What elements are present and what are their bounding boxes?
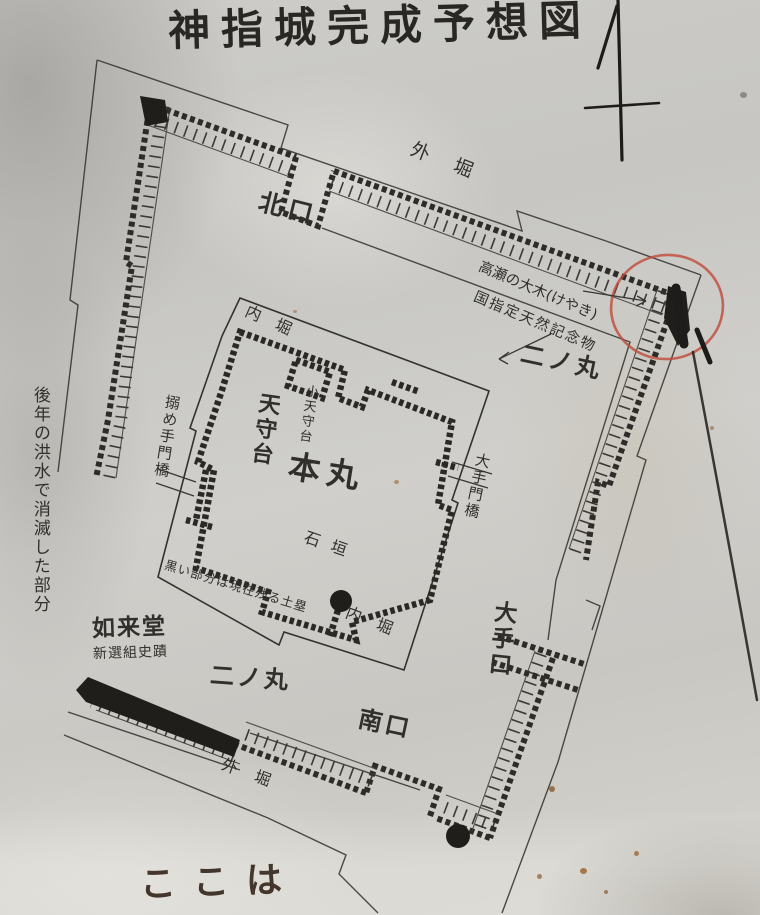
castle-plan-drawing: [0, 0, 760, 915]
north-arrow-icon: [585, 0, 659, 160]
signboard-photo: 神指城完成予想図 外堀 北口 高瀬の大木(けやき) 国指定天然記念物 二ノ丸 内…: [0, 0, 760, 915]
annotation-flood-note: 後年の洪水で消滅した部分: [30, 386, 48, 614]
marker-strokes: [676, 288, 757, 700]
label-nyoraido: 如来堂: [92, 615, 168, 642]
label-ninomaru-sw: 二ノ丸: [209, 663, 292, 694]
map-title: 神指城完成予想図: [167, 0, 592, 54]
here-note: ここは: [139, 861, 299, 904]
label-shinsengumi: 新選組史蹟: [93, 645, 168, 662]
